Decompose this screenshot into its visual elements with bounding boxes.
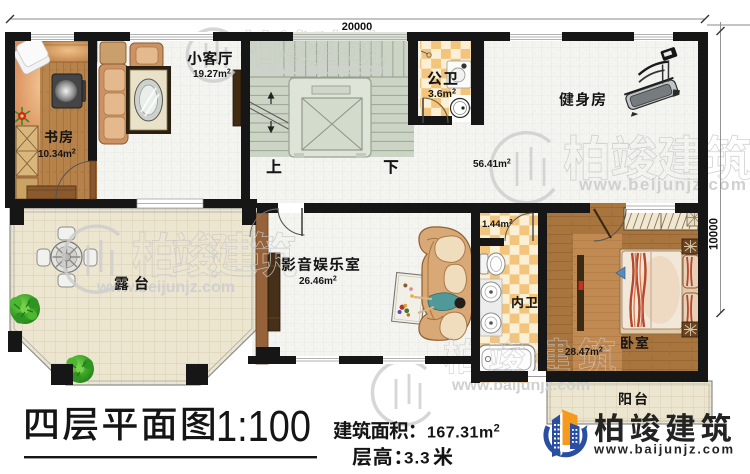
svg-text:3.6m2: 3.6m2 bbox=[428, 87, 456, 101]
svg-text:167.31m2: 167.31m2 bbox=[427, 423, 500, 442]
svg-text:56.41m2: 56.41m2 bbox=[473, 159, 511, 171]
svg-text:3.3: 3.3 bbox=[404, 449, 431, 468]
svg-text:1.44m2: 1.44m2 bbox=[482, 219, 513, 231]
svg-text:28.47m2: 28.47m2 bbox=[565, 347, 603, 359]
svg-text:26.46m2: 26.46m2 bbox=[299, 276, 337, 288]
svg-text:1:100: 1:100 bbox=[216, 402, 311, 451]
svg-text:10000: 10000 bbox=[709, 218, 721, 250]
svg-text:www.beijunjz.com: www.beijunjz.com bbox=[257, 61, 387, 78]
svg-text:10.34m2: 10.34m2 bbox=[38, 149, 76, 161]
svg-text:19.27m2: 19.27m2 bbox=[193, 69, 231, 81]
svg-text:20000: 20000 bbox=[342, 21, 373, 33]
